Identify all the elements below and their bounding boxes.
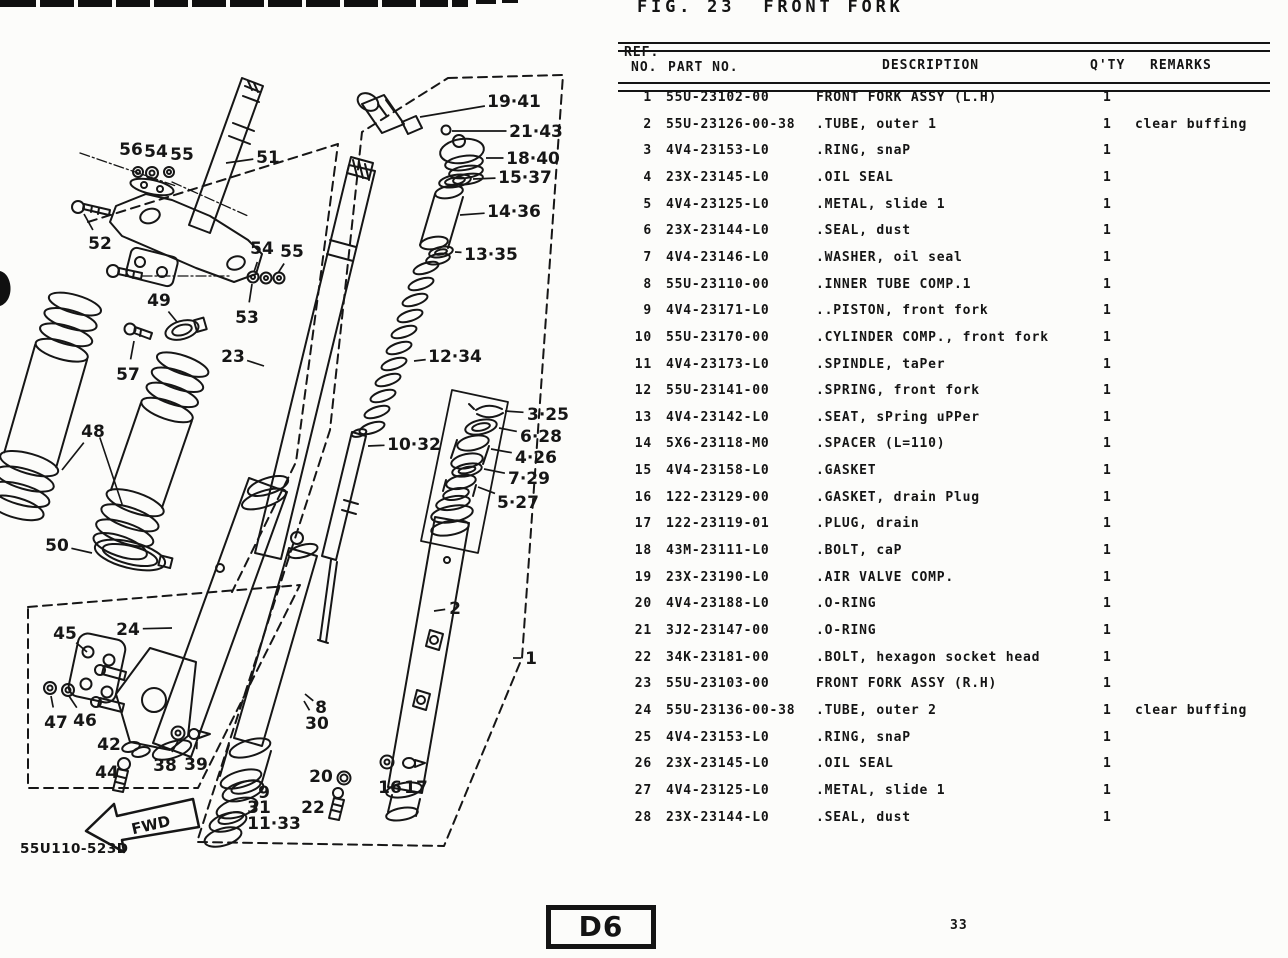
cell-desc: .O-RING [816, 596, 876, 611]
cell-qty: 1 [1103, 250, 1115, 265]
parts-table: REF. NO. PART NO. DESCRIPTION Q'TY REMAR… [618, 0, 1288, 860]
cell-part: 5X6-23118-M0 [666, 436, 770, 451]
cell-desc: .WASHER, oil seal [816, 250, 963, 265]
callout-7·29: 7·29 [508, 469, 550, 489]
cell-qty: 1 [1103, 303, 1115, 318]
table-row: 623X-23144-L0.SEAL, dust1 [618, 223, 1288, 239]
washer-47 [44, 682, 56, 694]
callout-52: 52 [88, 234, 112, 254]
cell-ref: 3 [618, 143, 652, 158]
plate-code-box: D6 [546, 905, 656, 949]
cell-qty: 1 [1103, 463, 1115, 478]
cell-ref: 8 [618, 277, 652, 292]
callout-44: 44 [95, 763, 119, 783]
callout-53: 53 [235, 308, 259, 328]
cell-qty: 1 [1103, 756, 1115, 771]
o-ring-21 [442, 126, 451, 135]
cell-part: 4V4-23171-L0 [666, 303, 770, 318]
cell-ref: 18 [618, 543, 652, 558]
cell-ref: 28 [618, 810, 652, 825]
callout-48: 48 [81, 422, 105, 442]
table-row: 17122-23119-01.PLUG, drain1 [618, 516, 1288, 532]
cell-desc: .CYLINDER COMP., front fork [816, 330, 1049, 345]
cell-desc: .GASKET [816, 463, 876, 478]
table-row: 54V4-23125-L0.METAL, slide 11 [618, 197, 1288, 213]
fwd-label: FWD [130, 812, 172, 838]
cell-qty: 1 [1103, 277, 1115, 292]
header-ref-line1: REF. [624, 45, 659, 60]
callout-46: 46 [73, 711, 97, 731]
table-row: 34V4-23153-L0.RING, snaP1 [618, 143, 1288, 159]
drawing-number: 55U110-523D [20, 841, 128, 857]
pinch-bolt-lower [107, 265, 142, 279]
callout-56: 56 [119, 140, 143, 160]
cell-desc: .SEAT, sPring uPPer [816, 410, 980, 425]
cell-ref: 2 [618, 117, 652, 132]
spacer [419, 184, 464, 252]
cell-part: 43M-23111-L0 [666, 543, 770, 558]
cell-ref: 1 [618, 90, 652, 105]
cell-desc: .GASKET, drain Plug [816, 490, 980, 505]
cell-part: 4V4-23173-L0 [666, 357, 770, 372]
cell-ref: 7 [618, 250, 652, 265]
cell-ref: 26 [618, 756, 652, 771]
cell-qty: 1 [1103, 623, 1115, 638]
cell-desc: .METAL, slide 1 [816, 197, 945, 212]
cell-ref: 16 [618, 490, 652, 505]
callout-19·41: 19·41 [487, 92, 541, 112]
header-remarks: REMARKS [1150, 58, 1212, 73]
cell-qty: 1 [1103, 516, 1115, 531]
callout-54: 54 [250, 239, 274, 259]
cell-desc: .SEAL, dust [816, 223, 911, 238]
cell-ref: 20 [618, 596, 652, 611]
table-row: 1843M-23111-L0.BOLT, caP1 [618, 543, 1288, 559]
header-qty: Q'TY [1090, 58, 1125, 73]
scan-artifact-edge-blob [0, 271, 11, 306]
cell-desc: ..PISTON, front fork [816, 303, 989, 318]
callout-55: 55 [170, 145, 194, 165]
bolt-39 [189, 729, 210, 739]
air-valve [354, 90, 422, 134]
cell-desc: .RING, snaP [816, 730, 911, 745]
callout-11·33: 11·33 [247, 814, 301, 834]
cell-part: 3J2-23147-00 [666, 623, 770, 638]
cell-desc: .SPINDLE, taPer [816, 357, 945, 372]
callout-12·34: 12·34 [428, 347, 482, 367]
cell-part: 122-23119-01 [666, 516, 770, 531]
table-row: 855U-23110-00.INNER TUBE COMP.11 [618, 277, 1288, 293]
cell-part: 34K-23181-00 [666, 650, 770, 665]
cell-part: 23X-23144-L0 [666, 810, 770, 825]
cell-ref: 17 [618, 516, 652, 531]
cell-ref: 14 [618, 436, 652, 451]
cell-part: 23X-23145-L0 [666, 170, 770, 185]
callout-57: 57 [116, 365, 140, 385]
slide-bushing [202, 809, 248, 851]
cell-desc: .SEAL, dust [816, 810, 911, 825]
cell-desc: .BOLT, hexagon socket head [816, 650, 1040, 665]
cell-ref: 9 [618, 303, 652, 318]
cell-desc: .TUBE, outer 2 [816, 703, 937, 718]
table-row: 254V4-23153-L0.RING, snaP1 [618, 730, 1288, 746]
socket-bolt-22 [329, 788, 344, 820]
cell-part: 55U-23136-00-38 [666, 703, 795, 718]
table-row: 2355U-23103-00FRONT FORK ASSY (R.H)1 [618, 676, 1288, 692]
callout-42: 42 [97, 735, 121, 755]
callout-38: 38 [153, 756, 177, 776]
table-row: 16122-23129-00.GASKET, drain Plug1 [618, 490, 1288, 506]
cell-part: 4V4-23142-L0 [666, 410, 770, 425]
table-row: 155U-23102-00FRONT FORK ASSY (L.H)1 [618, 90, 1288, 106]
cell-desc: .BOLT, caP [816, 543, 902, 558]
cell-qty: 1 [1103, 223, 1115, 238]
cell-part: 23X-23144-L0 [666, 223, 770, 238]
inner-tube-rh [219, 532, 319, 792]
table-row: 2623X-23145-L0.OIL SEAL1 [618, 756, 1288, 772]
callout-3·25: 3·25 [527, 405, 569, 425]
callout-15·37: 15·37 [498, 168, 552, 188]
cell-ref: 6 [618, 223, 652, 238]
callout-47: 47 [44, 713, 68, 733]
cell-part: 55U-23126-00-38 [666, 117, 795, 132]
table-row: 1055U-23170-00.CYLINDER COMP., front for… [618, 330, 1288, 346]
parts-catalog-page: { "page": { "title": "FIG. 23 FRONT FORK… [0, 0, 1288, 958]
cell-ref: 27 [618, 783, 652, 798]
steering-stem [189, 78, 263, 233]
cell-qty: 1 [1103, 676, 1115, 691]
cell-desc: FRONT FORK ASSY (R.H) [816, 676, 997, 691]
cell-desc: .METAL, slide 1 [816, 783, 945, 798]
cell-qty: 1 [1103, 117, 1115, 132]
cell-qty: 1 [1103, 810, 1115, 825]
cell-qty: 1 [1103, 90, 1115, 105]
cell-qty: 1 [1103, 383, 1115, 398]
table-row: 204V4-23188-L0.O-RING1 [618, 596, 1288, 612]
table-row: 255U-23126-00-38.TUBE, outer 11clear buf… [618, 117, 1288, 133]
cell-desc: .O-RING [816, 623, 876, 638]
cell-qty: 1 [1103, 490, 1115, 505]
cell-qty: 1 [1103, 703, 1115, 718]
cell-part: 4V4-23125-L0 [666, 197, 770, 212]
cell-part: 4V4-23153-L0 [666, 730, 770, 745]
cell-desc: .RING, snaP [816, 143, 911, 158]
callout-1: 1 [525, 649, 537, 669]
callout-23: 23 [221, 347, 245, 367]
cell-part: 4V4-23158-L0 [666, 463, 770, 478]
table-row: 154V4-23158-L0.GASKET1 [618, 463, 1288, 479]
callout-39: 39 [184, 755, 208, 775]
o-ring-20 [338, 772, 351, 785]
cell-part: 4V4-23125-L0 [666, 783, 770, 798]
washer-38 [172, 727, 185, 740]
cell-ref: 4 [618, 170, 652, 185]
inner-tube-lh [255, 157, 375, 559]
header-description: DESCRIPTION [882, 58, 979, 73]
cell-qty: 1 [1103, 143, 1115, 158]
cell-qty: 1 [1103, 596, 1115, 611]
cell-qty: 1 [1103, 783, 1115, 798]
cell-part: 4V4-23188-L0 [666, 596, 770, 611]
cell-part: 23X-23145-L0 [666, 756, 770, 771]
cell-ref: 15 [618, 463, 652, 478]
cell-ref: 11 [618, 357, 652, 372]
cell-desc: .PLUG, drain [816, 516, 920, 531]
table-row: 1923X-23190-L0.AIR VALVE COMP.1 [618, 570, 1288, 586]
header-ref-line2: NO. [631, 60, 657, 75]
cell-desc: .SPRING, front fork [816, 383, 980, 398]
cell-desc: .AIR VALVE COMP. [816, 570, 954, 585]
table-row: 74V4-23146-L0.WASHER, oil seal1 [618, 250, 1288, 266]
cell-desc: .TUBE, outer 1 [816, 117, 937, 132]
cell-ref: 24 [618, 703, 652, 718]
stem-washers-right [248, 272, 285, 284]
table-row: 94V4-23171-L0..PISTON, front fork1 [618, 303, 1288, 319]
pinch-bolt-upper [72, 201, 110, 215]
table-row: 2823X-23144-L0.SEAL, dust1 [618, 810, 1288, 826]
callout-45: 45 [53, 624, 77, 644]
cell-part: 55U-23103-00 [666, 676, 770, 691]
callout-13·35: 13·35 [464, 245, 518, 265]
callout-54: 54 [144, 142, 168, 162]
cell-qty: 1 [1103, 330, 1115, 345]
table-row: 274V4-23125-L0.METAL, slide 11 [618, 783, 1288, 799]
scan-artifact-top-bar [0, 0, 518, 7]
callout-50: 50 [45, 536, 69, 556]
cell-qty: 1 [1103, 170, 1115, 185]
table-row: 2234K-23181-00.BOLT, hexagon socket head… [618, 650, 1288, 666]
plate-code: D6 [579, 910, 624, 943]
cell-part: 23X-23190-L0 [666, 570, 770, 585]
cell-ref: 12 [618, 383, 652, 398]
cell-ref: 10 [618, 330, 652, 345]
page-number: 33 [950, 918, 968, 933]
cell-ref: 25 [618, 730, 652, 745]
cell-rem: clear buffing [1135, 117, 1247, 132]
cell-part: 55U-23110-00 [666, 277, 770, 292]
cell-ref: 22 [618, 650, 652, 665]
table-row: 1255U-23141-00.SPRING, front fork1 [618, 383, 1288, 399]
cell-part: 122-23129-00 [666, 490, 770, 505]
callout-21·43: 21·43 [509, 122, 563, 142]
callout-16: 16 [378, 778, 402, 798]
table-row: 213J2-23147-00.O-RING1 [618, 623, 1288, 639]
cell-part: 55U-23170-00 [666, 330, 770, 345]
cell-ref: 13 [618, 410, 652, 425]
callout-2: 2 [449, 599, 461, 619]
callout-24: 24 [116, 620, 140, 640]
cell-part: 55U-23141-00 [666, 383, 770, 398]
dashed-group-rh-fork [197, 75, 563, 846]
damper-rod [318, 428, 367, 643]
table-row: 423X-23145-L0.OIL SEAL1 [618, 170, 1288, 186]
callout-18·40: 18·40 [506, 149, 560, 169]
callout-51: 51 [256, 148, 280, 168]
cell-qty: 1 [1103, 410, 1115, 425]
cell-ref: 19 [618, 570, 652, 585]
cell-qty: 1 [1103, 730, 1115, 745]
cell-part: 4V4-23153-L0 [666, 143, 770, 158]
boot-clamp-upper [163, 315, 207, 344]
fork-boot-right [89, 346, 214, 565]
cell-qty: 1 [1103, 357, 1115, 372]
cell-part: 55U-23102-00 [666, 90, 770, 105]
callout-22: 22 [301, 798, 325, 818]
outer-tube-lh [91, 472, 290, 764]
cell-ref: 5 [618, 197, 652, 212]
cell-desc: .OIL SEAL [816, 756, 894, 771]
callout-20: 20 [309, 767, 333, 787]
callout-10·32: 10·32 [387, 435, 441, 455]
drain-plug-17 [403, 758, 425, 768]
clamp-bolt-57 [125, 324, 153, 340]
cell-qty: 1 [1103, 650, 1115, 665]
callout-17: 17 [404, 778, 428, 798]
callout-49: 49 [147, 291, 171, 311]
callout-14·36: 14·36 [487, 202, 541, 222]
spring-seat [425, 245, 454, 267]
cell-qty: 1 [1103, 570, 1115, 585]
header-part-no: PART NO. [668, 60, 739, 75]
oil-lock-rings-42 [121, 740, 151, 758]
cell-part: 4V4-23146-L0 [666, 250, 770, 265]
table-row: 2455U-23136-00-38.TUBE, outer 21clear bu… [618, 703, 1288, 719]
cell-desc: .SPACER (L=110) [816, 436, 945, 451]
cell-rem: clear buffing [1135, 703, 1247, 718]
callout-6·28: 6·28 [520, 427, 562, 447]
cell-ref: 21 [618, 623, 652, 638]
table-rule-top [618, 42, 1270, 52]
table-row: 134V4-23142-L0.SEAT, sPring uPPer1 [618, 410, 1288, 426]
callout-55: 55 [280, 242, 304, 262]
cell-desc: .OIL SEAL [816, 170, 894, 185]
fork-boot-left [0, 287, 106, 526]
cell-qty: 1 [1103, 436, 1115, 451]
callout-30: 30 [305, 714, 329, 734]
cell-ref: 23 [618, 676, 652, 691]
table-row: 114V4-23173-L0.SPINDLE, taPer1 [618, 357, 1288, 373]
cell-desc: .INNER TUBE COMP.1 [816, 277, 971, 292]
callout-4·26: 4·26 [515, 448, 557, 468]
cell-qty: 1 [1103, 543, 1115, 558]
leader-48b [100, 438, 122, 504]
callout-5·27: 5·27 [497, 493, 539, 513]
cell-desc: FRONT FORK ASSY (L.H) [816, 90, 997, 105]
table-row: 145X6-23118-M0.SPACER (L=110)1 [618, 436, 1288, 452]
cell-qty: 1 [1103, 197, 1115, 212]
